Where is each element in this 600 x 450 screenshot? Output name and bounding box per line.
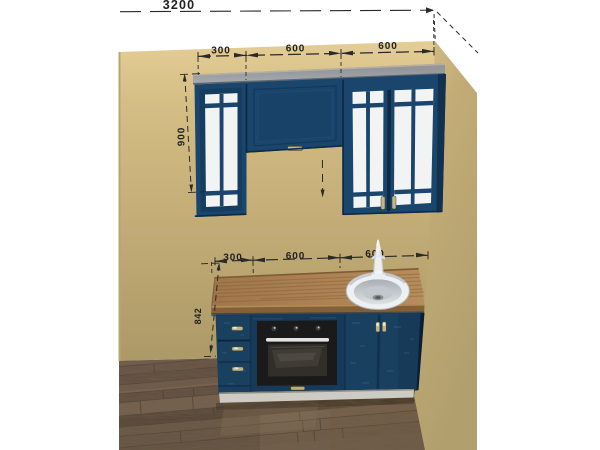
svg-text:3200: 3200 — [163, 0, 196, 12]
svg-text:600: 600 — [286, 44, 305, 55]
svg-text:900: 900 — [177, 127, 188, 146]
svg-text:600: 600 — [378, 41, 397, 52]
svg-text:842: 842 — [193, 308, 203, 325]
svg-text:300: 300 — [211, 46, 230, 57]
svg-text:600: 600 — [286, 251, 305, 262]
